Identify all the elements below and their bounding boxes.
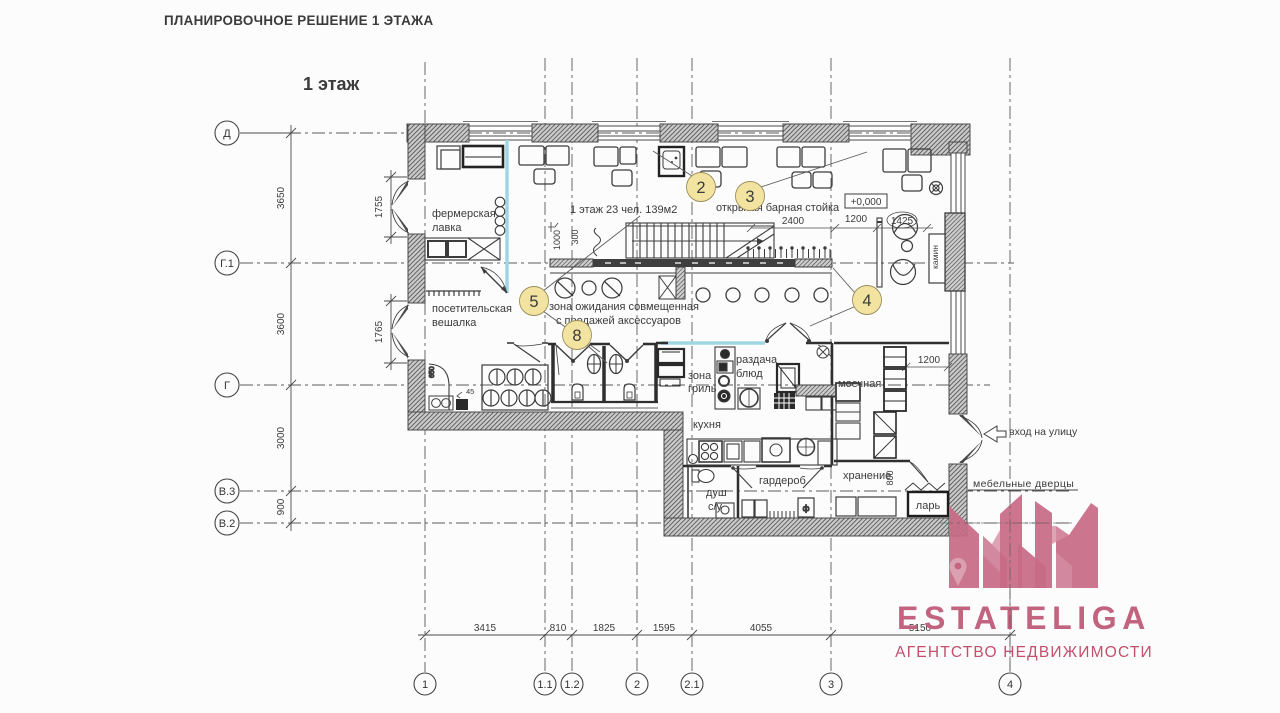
svg-text:1425: 1425 xyxy=(891,216,914,227)
svg-text:5: 5 xyxy=(529,293,538,311)
svg-text:3: 3 xyxy=(745,188,754,206)
svg-text:Г: Г xyxy=(224,380,230,392)
svg-text:3415: 3415 xyxy=(474,623,497,634)
svg-text:посетительская: посетительская xyxy=(432,303,512,315)
svg-text:АГЕНТСТВО НЕДВИЖИМОСТИ: АГЕНТСТВО НЕДВИЖИМОСТИ xyxy=(895,644,1153,661)
svg-text:1765: 1765 xyxy=(374,320,385,343)
svg-text:гардероб: гардероб xyxy=(759,475,806,487)
svg-text:зона: зона xyxy=(688,370,712,382)
svg-text:хранение: хранение xyxy=(843,470,891,482)
svg-text:3000: 3000 xyxy=(276,426,287,449)
svg-text:зона ожидания совмещенная: зона ожидания совмещенная xyxy=(549,301,699,313)
svg-text:1 этаж: 1 этаж xyxy=(303,74,360,94)
svg-text:ESTATELIGA: ESTATELIGA xyxy=(897,600,1151,636)
svg-text:Д: Д xyxy=(223,128,231,140)
svg-text:ф: ф xyxy=(803,504,810,513)
svg-text:8: 8 xyxy=(572,327,581,345)
svg-text:1595: 1595 xyxy=(653,623,676,634)
svg-text:1 этаж 23 чел. 139м2: 1 этаж 23 чел. 139м2 xyxy=(570,204,677,216)
svg-text:2400: 2400 xyxy=(782,216,805,227)
svg-text:раздача: раздача xyxy=(736,354,778,366)
svg-text:гриль: гриль xyxy=(688,383,717,395)
svg-text:фермерская: фермерская xyxy=(432,208,496,220)
svg-text:открытая барная стойка: открытая барная стойка xyxy=(716,202,840,214)
svg-text:вешалка: вешалка xyxy=(432,317,477,329)
svg-text:лавка: лавка xyxy=(432,222,462,234)
svg-text:1.1: 1.1 xyxy=(537,679,552,691)
svg-text:45: 45 xyxy=(466,387,474,396)
svg-text:кухня: кухня xyxy=(693,419,721,431)
svg-text:2: 2 xyxy=(634,679,640,691)
svg-text:1: 1 xyxy=(422,679,428,691)
svg-text:3650: 3650 xyxy=(276,186,287,209)
svg-text:3600: 3600 xyxy=(276,312,287,335)
svg-text:2.1: 2.1 xyxy=(684,679,699,691)
svg-text:камин: камин xyxy=(930,245,940,269)
svg-text:1.2: 1.2 xyxy=(564,679,579,691)
svg-text:моечная: моечная xyxy=(838,378,881,390)
svg-text:душ: душ xyxy=(706,487,727,499)
svg-text:Г.1: Г.1 xyxy=(220,258,234,270)
svg-text:810: 810 xyxy=(550,623,567,634)
svg-text:4: 4 xyxy=(1007,679,1013,691)
svg-text:мебельные дверцы: мебельные дверцы xyxy=(973,478,1074,490)
svg-text:1825: 1825 xyxy=(593,623,616,634)
svg-text:с/у: с/у xyxy=(708,501,723,513)
svg-text:+0,000: +0,000 xyxy=(851,197,882,208)
svg-text:300: 300 xyxy=(570,229,580,244)
svg-text:1000: 1000 xyxy=(552,230,562,250)
svg-text:4: 4 xyxy=(862,292,871,310)
svg-text:блюд: блюд xyxy=(736,368,763,380)
svg-text:ПЛАНИРОВОЧНОЕ РЕШЕНИЕ 1 ЭТАЖА: ПЛАНИРОВОЧНОЕ РЕШЕНИЕ 1 ЭТАЖА xyxy=(164,13,433,28)
svg-text:1755: 1755 xyxy=(374,195,385,218)
svg-text:1200: 1200 xyxy=(918,355,941,366)
svg-text:900: 900 xyxy=(276,498,287,515)
svg-text:ларь: ларь xyxy=(916,500,941,512)
svg-text:1200: 1200 xyxy=(845,214,868,225)
svg-text:В.2: В.2 xyxy=(219,518,236,530)
svg-text:4055: 4055 xyxy=(750,623,773,634)
svg-text:2: 2 xyxy=(696,179,705,197)
svg-text:В.3: В.3 xyxy=(219,486,236,498)
svg-text:3: 3 xyxy=(828,679,834,691)
svg-text:650: 650 xyxy=(429,366,436,378)
svg-text:вход на улицу: вход на улицу xyxy=(1009,426,1078,438)
